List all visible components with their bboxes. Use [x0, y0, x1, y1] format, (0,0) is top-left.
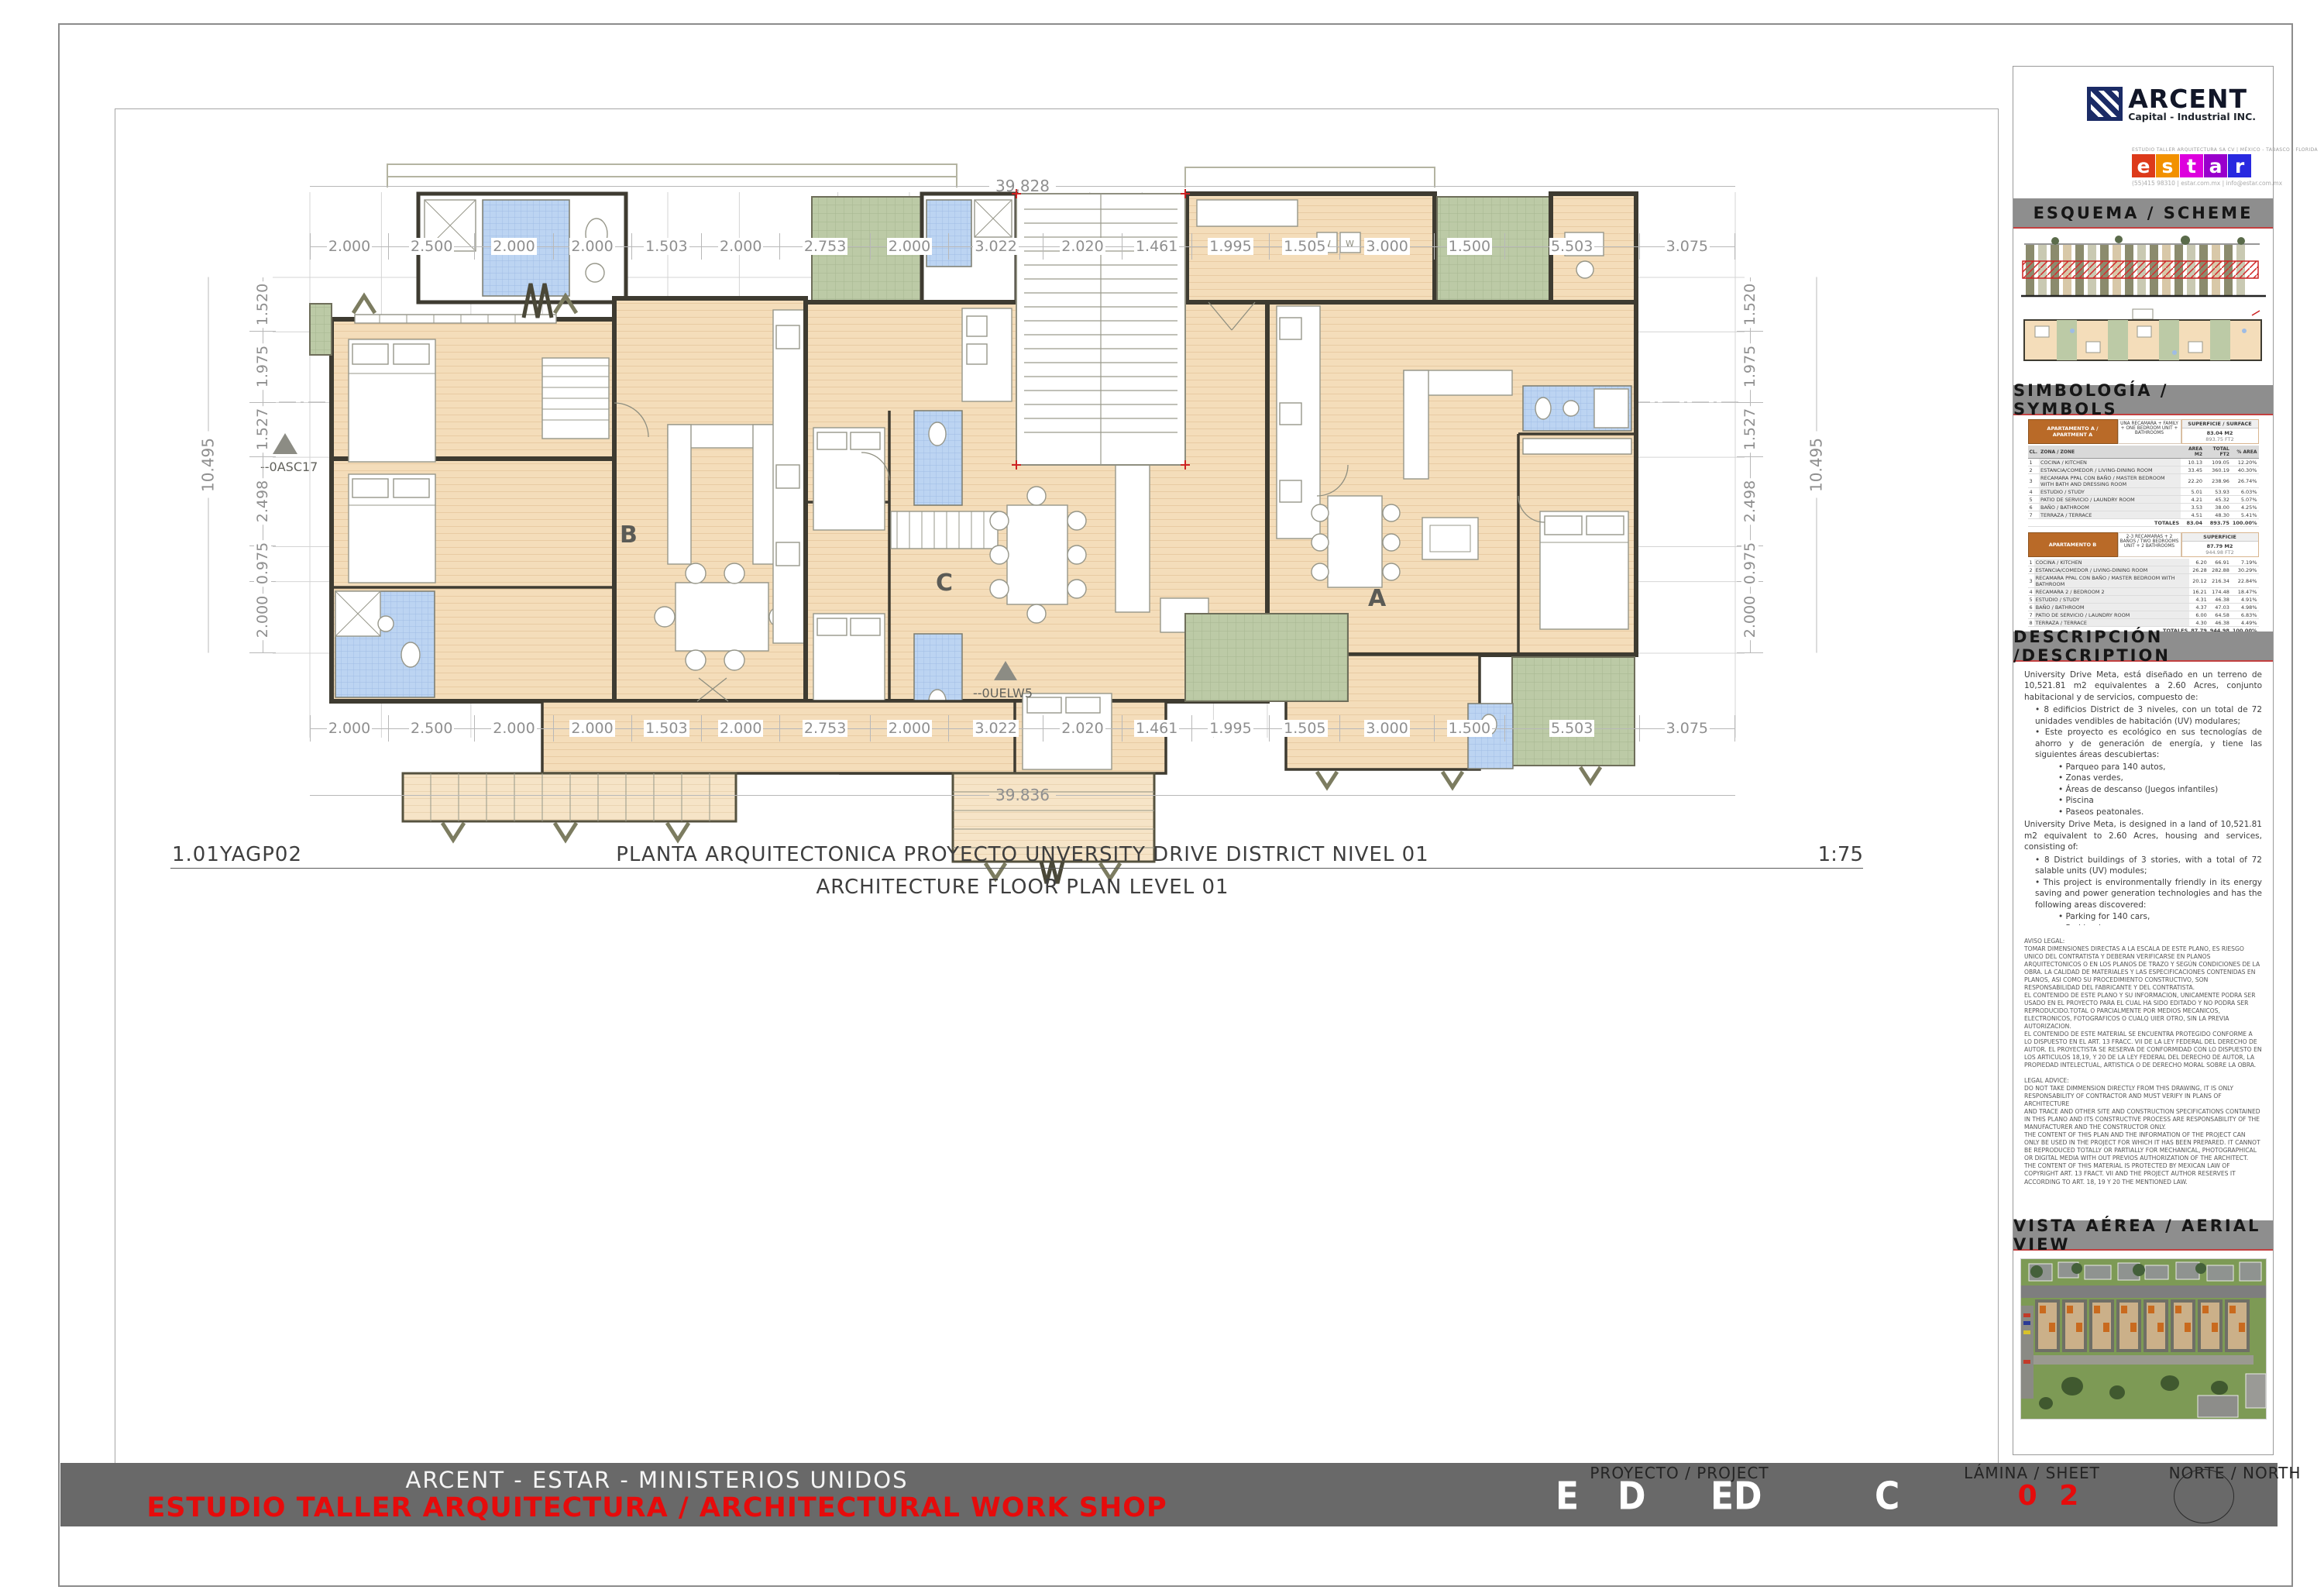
dim-value: 2.753 — [779, 233, 870, 260]
overall-dim-top: 39.828 — [310, 178, 1735, 194]
dim-col-left: 1.5201.9751.5272.4980.9752.000 — [249, 277, 276, 653]
logo-area: ARCENT Capital - Industrial INC. ESTUDIO… — [2013, 67, 2273, 198]
arcent-logo: ARCENT Capital - Industrial INC. — [2087, 87, 2256, 122]
table-note: UNA RECAMARA + FAMILY + ONE BEDROOM UNIT… — [2118, 419, 2181, 444]
dim-value: 2.498 — [249, 457, 276, 546]
scheme-plan — [2020, 308, 2267, 374]
description-sub-bullet: Paseos peatonales. — [2058, 807, 2262, 817]
dim-value: 1.503 — [631, 715, 702, 742]
legal-notice-es: AVISO LEGAL: TOMAR DIMENSIONES DIRECTAS … — [2024, 938, 2262, 1069]
dim-value: 1.527 — [1737, 403, 1763, 458]
dim-value: 1.520 — [1737, 277, 1763, 332]
dim-value: 1.500 — [1434, 233, 1504, 260]
estar-tile-e: e — [2132, 154, 2155, 177]
estar-logo-tiles: estar — [2132, 154, 2253, 177]
dim-value: 2.000 — [870, 715, 948, 742]
dim-value: 5.503 — [1504, 233, 1639, 260]
table-row: 3RECAMARA PPAL CON BAÑO / MASTER BEDROOM… — [2028, 474, 2259, 488]
estar-tile-r: r — [2228, 154, 2251, 177]
dim-value: 1.975 — [1737, 332, 1763, 402]
dim-value: 2.000 — [701, 233, 779, 260]
dim-value: 1.995 — [1191, 715, 1270, 742]
plan-title-en: ARCHITECTURE FLOOR PLAN LEVEL 01 — [325, 876, 1720, 899]
dim-value: 2.000 — [1737, 582, 1763, 653]
dim-value: 1.505 — [1269, 233, 1339, 260]
area-table-apartment-b: APARTAMENTO B 2-3 RECAMARAS + 2 BAÑOS / … — [2028, 532, 2259, 632]
aerial-view — [2013, 1251, 2273, 1471]
arcent-name: ARCENT — [2128, 87, 2256, 111]
sheet-number: 0 2 — [2001, 1480, 2102, 1512]
dim-value: 3.022 — [948, 233, 1043, 260]
title-underline — [170, 868, 1863, 869]
north-label: NORTE / NORTH — [2138, 1464, 2324, 1482]
description-sub-bullet: Áreas de descanso (Juegos infantiles) — [2058, 784, 2262, 795]
description-bullet: This project is environmentally friendly… — [2035, 877, 2262, 910]
dim-value: 0.975 — [1737, 546, 1763, 582]
estar-firm-line: ESTUDIO TALLER ARQUITECTURA SA CV | MÉXI… — [2132, 147, 2253, 153]
dim-value: 3.075 — [1639, 715, 1735, 742]
dim-value: 2.000 — [310, 233, 388, 260]
description-bullet: 8 edificios District de 3 niveles, con u… — [2035, 704, 2262, 727]
scheme-level-highlight — [2023, 261, 2258, 278]
dim-value: 1.995 — [1191, 233, 1270, 260]
dim-value: 1.461 — [1122, 233, 1191, 260]
dim-value: 1.520 — [249, 277, 276, 332]
drawing-code: 1.01YAGP02 — [172, 843, 302, 866]
drawing-sheet: WW — [0, 0, 2324, 1590]
dim-value: 2.500 — [388, 715, 474, 742]
dim-value: 2.500 — [388, 233, 474, 260]
estar-tile-t: t — [2180, 154, 2203, 177]
table-row: 8TERRAZA / TERRACE4.3046.384.49% — [2028, 619, 2259, 627]
section-header-symbols: SIMBOLOGÍA / SYMBOLS — [2013, 385, 2273, 415]
section-header-aerial: VISTA AÉREA / AERIAL VIEW — [2013, 1220, 2273, 1251]
dim-value: 3.000 — [1339, 233, 1434, 260]
dim-row-top: 2.0002.5002.0002.0001.5032.0002.7532.000… — [310, 233, 1735, 260]
arcent-tagline: Capital - Industrial INC. — [2128, 111, 2256, 122]
area-table-apartment-a: APARTAMENTO A / APARTMENT A UNA RECAMARA… — [2028, 419, 2259, 527]
dim-value: 5.503 — [1504, 715, 1639, 742]
arcent-logo-icon — [2087, 87, 2123, 121]
description-es-intro: University Drive Meta, está diseñado en … — [2024, 669, 2262, 703]
dim-value: 3.022 — [948, 715, 1043, 742]
description-sub-bullet: Zonas verdes, — [2058, 773, 2262, 783]
estar-tile-s: s — [2156, 154, 2179, 177]
footer-studio-line: ESTUDIO TALLER ARQUITECTURA / ARCHITECTU… — [60, 1492, 1253, 1523]
overall-dim-bottom: 39.836 — [310, 787, 1735, 803]
estar-tile-a: a — [2204, 154, 2227, 177]
estar-logo: ESTUDIO TALLER ARQUITECTURA SA CV | MÉXI… — [2132, 147, 2253, 187]
table-row: 1COCINA / KITCHEN6.2066.917.19% — [2028, 559, 2259, 566]
dim-value: 2.000 — [553, 715, 631, 742]
table-row: 3RECAMARA PPAL CON BAÑO / MASTER BEDROOM… — [2028, 574, 2259, 588]
dim-value: 2.000 — [474, 233, 552, 260]
overall-dim-right: 10.495 — [1808, 277, 1825, 653]
project-letter: D — [1618, 1475, 1646, 1519]
dim-value: 1.527 — [249, 403, 276, 458]
dim-value: 1.461 — [1122, 715, 1191, 742]
table-row: 7TERRAZA / TERRACE4.5148.305.41% — [2028, 511, 2259, 519]
table-row: 4RECAMARA 2 / BEDROOM 216.21174.4818.47% — [2028, 588, 2259, 596]
scheme-thumbnails — [2013, 229, 2273, 385]
table-row: 2ESTANCIA/COMEDOR / LIVING-DINING ROOM26… — [2028, 566, 2259, 574]
symbols-section: APARTAMENTO A / APARTMENT A UNA RECAMARA… — [2013, 415, 2273, 632]
description-sub-bullet: Parking for 140 cars, — [2058, 911, 2262, 922]
title-block: ARCENT Capital - Industrial INC. ESTUDIO… — [2013, 66, 2274, 1455]
section-header-description: DESCRIPCIÓN /DESCRIPTION — [2013, 632, 2273, 662]
dim-col-right: 1.5201.9751.5272.4980.9752.000 — [1737, 277, 1763, 653]
description-sub-bullet: Parqueo para 140 autos, — [2058, 762, 2262, 773]
dim-value: 2.753 — [779, 715, 870, 742]
legal-notice-en: LEGAL ADVICE: DO NOT TAKE DIMMENSION DIR… — [2024, 1077, 2262, 1186]
table-row: 5PATIO DE SERVICIO / LAUNDRY ROOM4.2145.… — [2028, 496, 2259, 504]
dim-value: 2.000 — [553, 233, 631, 260]
dim-value: 2.020 — [1043, 715, 1121, 742]
dim-value: 2.498 — [1737, 457, 1763, 546]
north-arrow-circle — [2174, 1469, 2234, 1523]
dim-value: 3.075 — [1639, 233, 1735, 260]
table-row: 6BAÑO / BATHROOM3.5338.004.25% — [2028, 504, 2259, 511]
description-en-intro: University Drive Meta, is designed in a … — [2024, 819, 2262, 852]
dim-value: 2.000 — [701, 715, 779, 742]
table-title: APARTAMENTO A / APARTMENT A — [2028, 419, 2118, 444]
dim-row-bottom: 2.0002.5002.0002.0001.5032.0002.7532.000… — [310, 715, 1735, 742]
dim-value: 1.500 — [1434, 715, 1504, 742]
estar-contact: (55)415 98310 | estar.com.mx | info@esta… — [2132, 180, 2253, 187]
project-letter: E — [1556, 1475, 1579, 1519]
dim-value: 2.000 — [870, 233, 948, 260]
project-letter: ED — [1710, 1475, 1762, 1519]
description-section: University Drive Meta, está diseñado en … — [2013, 662, 2273, 925]
legal-notice: AVISO LEGAL: TOMAR DIMENSIONES DIRECTAS … — [2013, 925, 2273, 1220]
dim-value: 1.503 — [631, 233, 702, 260]
description-bullet: 8 District buildings of 3 stories, with … — [2035, 855, 2262, 877]
dim-value: 1.975 — [249, 332, 276, 402]
table-row: 7PATIO DE SERVICIO / LAUNDRY ROOM6.0064.… — [2028, 611, 2259, 619]
table-row: 1COCINA / KITCHEN10.13109.0512.20% — [2028, 459, 2259, 466]
scheme-elevation — [2020, 233, 2267, 305]
table-row: 4ESTUDIO / STUDY5.0153.936.03% — [2028, 488, 2259, 496]
dim-value: 2.000 — [249, 582, 276, 653]
description-sub-bullet: Piscina — [2058, 795, 2262, 806]
dim-value: 3.000 — [1339, 715, 1434, 742]
aerial-view-image — [2020, 1258, 2267, 1420]
plan-title-es: PLANTA ARQUITECTONICA PROYECTO UNVERSITY… — [325, 843, 1720, 866]
section-header-scheme: ESQUEMA / SCHEME — [2013, 198, 2273, 229]
footer-bar: ARCENT - ESTAR - MINISTERIOS UNIDOS ESTU… — [60, 1463, 2278, 1526]
dim-value: 1.505 — [1269, 715, 1339, 742]
dim-value: 2.000 — [474, 715, 552, 742]
overall-dim-left: 10.495 — [200, 277, 217, 653]
description-bullet: Este proyecto es ecológico en sus tecnol… — [2035, 727, 2262, 760]
project-letter: C — [1875, 1475, 1899, 1519]
plan-scale: 1:75 — [1774, 843, 1863, 866]
dim-value: 2.020 — [1043, 233, 1121, 260]
table-row: 2ESTANCIA/COMEDOR / LIVING-DINING ROOM33… — [2028, 466, 2259, 474]
table-row: 5ESTUDIO / STUDY4.3146.384.91% — [2028, 596, 2259, 604]
table-row: 6BAÑO / BATHROOM4.3747.034.98% — [2028, 604, 2259, 611]
footer-company-line: ARCENT - ESTAR - MINISTERIOS UNIDOS — [60, 1467, 1253, 1493]
dim-value: 0.975 — [249, 546, 276, 582]
dim-value: 2.000 — [310, 715, 388, 742]
